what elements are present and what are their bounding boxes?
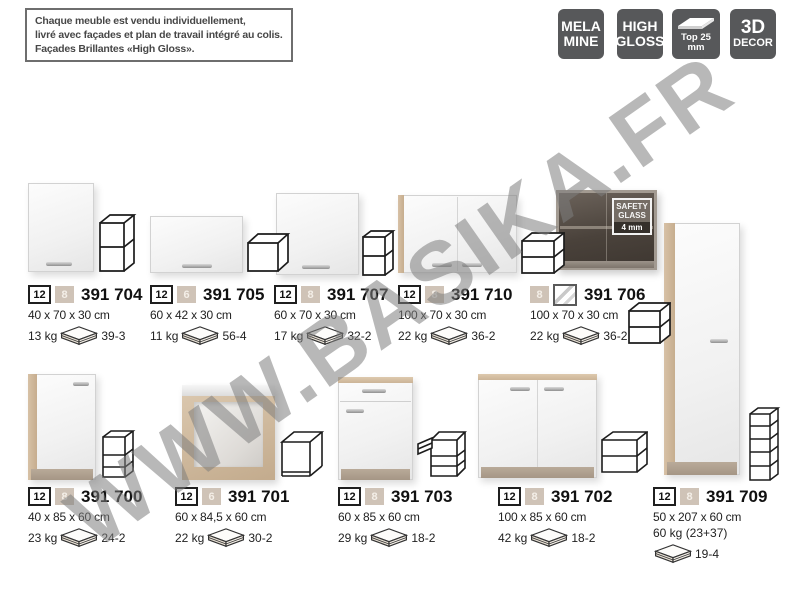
pack-ref: 36-2 [603, 329, 627, 343]
weight-row: 22 kg 36-2 [398, 325, 512, 347]
door-handle [346, 409, 364, 413]
parcel-icon [305, 325, 345, 347]
cabinet-side-panel [28, 374, 37, 480]
weight-row: 17 kg 32-2 [274, 325, 388, 347]
decor-line1: 3D [741, 19, 765, 37]
carcass-wireframe-icon [100, 429, 136, 479]
parcel-icon [561, 325, 601, 347]
product-weight: 42 kg [498, 531, 527, 545]
product-code: 391 709 [706, 487, 767, 507]
badge-row: 8 391 706 [530, 285, 645, 304]
worktop-edge [182, 385, 275, 396]
pack-ref: 56-4 [222, 329, 246, 343]
product-dimensions: 40 x 70 x 30 cm [28, 308, 142, 322]
parcel-icon [59, 527, 99, 549]
weight-row: 11 kg 56-4 [150, 325, 264, 347]
pack-badge: 8 [55, 488, 74, 505]
worktop-badge: Top 25 mm [672, 9, 720, 59]
glass-icon [553, 284, 577, 306]
product-dimensions: 100 x 70 x 30 cm [530, 308, 645, 322]
high-gloss-line1: HIGH [623, 19, 658, 34]
product-code: 391 701 [228, 487, 289, 507]
safety-glass-thickness: 4 mm [614, 222, 650, 233]
pack-badge: 8 [55, 286, 74, 303]
info-line-2: livré avec façades et plan de travail in… [35, 28, 283, 42]
pack-ref: 39-3 [101, 329, 125, 343]
product-weight: 60 kg (23+37) [653, 526, 767, 540]
badge-row: 12 8 391 704 [28, 285, 142, 304]
open-drawer-wireframe-icon [417, 428, 467, 478]
badge-row: 12 8 391 700 [28, 487, 142, 506]
catalog-page: Chaque meuble est vendu individuellement… [0, 0, 800, 600]
carcass-wireframe-icon [246, 231, 292, 273]
pack-ref: 32-2 [347, 329, 371, 343]
parcel-icon [369, 527, 409, 549]
product-photo-391706: SAFETY GLASS 4 mm [556, 190, 657, 270]
weight-row: 22 kg 30-2 [175, 527, 289, 549]
product-label-391710: 12 8 391 710 100 x 70 x 30 cm 22 kg 36-2 [398, 285, 512, 347]
product-label-391700: 12 8 391 700 40 x 85 x 60 cm 23 kg 24-2 [28, 487, 142, 549]
product-code: 391 700 [81, 487, 142, 507]
cabinet-front [664, 223, 740, 475]
product-dimensions: 60 x 85 x 60 cm [338, 510, 452, 524]
cabinet-plinth [667, 462, 737, 475]
pack-badge: 6 [177, 286, 196, 303]
product-code: 391 710 [451, 285, 512, 305]
qty-badge: 12 [338, 487, 361, 506]
cabinet-side-panel [664, 223, 675, 475]
cabinet-plinth [341, 469, 410, 480]
product-weight: 11 kg [150, 329, 178, 343]
product-weight: 22 kg [398, 329, 427, 343]
cabinet-handle [302, 265, 330, 269]
pack-badge: 8 [680, 488, 699, 505]
cabinet-side-panel [398, 195, 404, 273]
cabinet-handle [462, 263, 482, 267]
decor-badge: 3D DECOR [730, 9, 776, 59]
product-code: 391 706 [584, 285, 645, 305]
product-photo-391700 [28, 374, 96, 480]
pack-ref: 36-2 [471, 329, 495, 343]
cabinet-handle [73, 382, 89, 386]
product-label-391706: 8 391 706 100 x 70 x 30 cm 22 kg 36-2 [530, 285, 645, 347]
oven-opening [194, 402, 263, 467]
product-label-391709: 12 8 391 709 50 x 207 x 60 cm 60 kg (23+… [653, 487, 767, 565]
product-label-391702: 12 8 391 702 100 x 85 x 60 cm 42 kg 18-2 [498, 487, 612, 549]
high-gloss-badge: HIGH GLOSS [617, 9, 663, 59]
product-dimensions: 40 x 85 x 60 cm [28, 510, 142, 524]
cabinet-handle [432, 263, 452, 267]
cabinet-top-edge [338, 377, 413, 383]
badge-row: 12 8 391 703 [338, 487, 452, 506]
product-photo-391703 [338, 377, 413, 480]
cabinet-handle [182, 264, 212, 268]
melamine-line1: MELA [561, 19, 601, 34]
product-label-391704: 12 8 391 704 40 x 70 x 30 cm 13 kg 39-3 [28, 285, 142, 347]
door-divider [457, 197, 458, 271]
product-dimensions: 60 x 42 x 30 cm [150, 308, 264, 322]
parcel-icon [206, 527, 246, 549]
safety-glass-line1: SAFETY [614, 202, 650, 211]
weight-row: 13 kg 39-3 [28, 325, 142, 347]
product-label-391705: 12 6 391 705 60 x 42 x 30 cm 11 kg 56-4 [150, 285, 264, 347]
product-photo-391705 [150, 216, 243, 273]
pack-badge: 8 [365, 488, 384, 505]
melamine-line2: MINE [564, 34, 599, 49]
pack-badge: 6 [202, 488, 221, 505]
product-code: 391 707 [327, 285, 388, 305]
door-divider [537, 380, 538, 476]
glass-cabinet-bottom [559, 261, 654, 268]
badge-row: 12 6 391 705 [150, 285, 264, 304]
carcass-wireframe-icon [519, 229, 565, 275]
drawer-divider [340, 401, 411, 402]
cabinet-front [28, 183, 94, 272]
carcass-wireframe-icon [600, 429, 648, 474]
pack-badge: 8 [530, 286, 549, 303]
weight-row: 19-4 [653, 543, 767, 565]
high-gloss-line2: GLOSS [616, 34, 665, 49]
parcel-icon [653, 543, 693, 565]
pack-badge: 8 [301, 286, 320, 303]
product-dimensions: 100 x 70 x 30 cm [398, 308, 512, 322]
product-dimensions: 60 x 84,5 x 60 cm [175, 510, 289, 524]
product-photo-391709 [664, 223, 740, 475]
product-dimensions: 50 x 207 x 60 cm [653, 510, 767, 524]
qty-badge: 12 [28, 285, 51, 304]
cabinet-handle [710, 339, 728, 343]
product-weight: 29 kg [338, 531, 367, 545]
decor-line2: DECOR [733, 37, 773, 49]
product-photo-391704 [28, 183, 94, 272]
parcel-icon [429, 325, 469, 347]
carcass-wireframe-icon [360, 229, 396, 277]
info-line-3: Façades Brillantes «High Gloss». [35, 42, 283, 56]
product-dimensions: 60 x 70 x 30 cm [274, 308, 388, 322]
product-dimensions: 100 x 85 x 60 cm [498, 510, 612, 524]
glass-door-divider [606, 192, 607, 268]
product-code: 391 705 [203, 285, 264, 305]
info-box: Chaque meuble est vendu individuellement… [25, 8, 293, 62]
weight-row: 42 kg 18-2 [498, 527, 612, 549]
qty-badge: 12 [398, 285, 421, 304]
pack-ref: 18-2 [571, 531, 595, 545]
product-photo-391710 [398, 195, 517, 273]
qty-badge: 12 [274, 285, 297, 304]
product-label-391707: 12 8 391 707 60 x 70 x 30 cm 17 kg 32-2 [274, 285, 388, 347]
pack-ref: 30-2 [248, 531, 272, 545]
product-weight: 22 kg [175, 531, 204, 545]
pack-ref: 18-2 [411, 531, 435, 545]
weight-row: 22 kg 36-2 [530, 325, 645, 347]
qty-badge: 12 [175, 487, 198, 506]
parcel-icon [529, 527, 569, 549]
product-photo-391702 [478, 374, 597, 478]
product-weight: 22 kg [530, 329, 559, 343]
badge-row: 12 6 391 701 [175, 487, 289, 506]
badge-row: 12 8 391 710 [398, 285, 512, 304]
carcass-wireframe-icon [97, 213, 137, 273]
qty-badge: 12 [150, 285, 173, 304]
product-photo-391701 [182, 385, 275, 480]
safety-glass-line2: GLASS [614, 211, 650, 220]
pack-badge: 8 [525, 488, 544, 505]
cabinet-plinth [481, 467, 594, 478]
pack-ref: 24-2 [101, 531, 125, 545]
weight-row: 23 kg 24-2 [28, 527, 142, 549]
product-weight: 13 kg [28, 329, 57, 343]
safety-glass-label: SAFETY GLASS 4 mm [612, 198, 652, 235]
cabinet-handle [46, 262, 72, 266]
cabinet-plinth [31, 469, 93, 480]
drawer-handle [362, 389, 386, 393]
pack-ref: 19-4 [695, 547, 719, 561]
qty-badge: 12 [653, 487, 676, 506]
qty-badge: 12 [28, 487, 51, 506]
tall-carcass-wireframe-icon [747, 406, 781, 482]
product-label-391703: 12 8 391 703 60 x 85 x 60 cm 29 kg 18-2 [338, 487, 452, 549]
badge-row: 12 8 391 702 [498, 487, 612, 506]
badge-row: 12 8 391 707 [274, 285, 388, 304]
parcel-icon [180, 325, 220, 347]
weight-row: 29 kg 18-2 [338, 527, 452, 549]
qty-badge: 12 [498, 487, 521, 506]
product-code: 391 704 [81, 285, 142, 305]
worktop-caption: Top 25 mm [672, 33, 720, 53]
info-line-1: Chaque meuble est vendu individuellement… [35, 14, 283, 28]
worktop-slab-icon [676, 15, 716, 31]
cabinet-handle [544, 387, 564, 391]
product-weight: 17 kg [274, 329, 303, 343]
product-code: 391 702 [551, 487, 612, 507]
badge-row: 12 8 391 709 [653, 487, 767, 506]
product-code: 391 703 [391, 487, 452, 507]
open-frame-wireframe-icon [280, 428, 324, 478]
cabinet-front [28, 374, 96, 480]
melamine-badge: MELA MINE [558, 9, 604, 59]
product-label-391701: 12 6 391 701 60 x 84,5 x 60 cm 22 kg 30-… [175, 487, 289, 549]
product-weight: 23 kg [28, 531, 57, 545]
pack-badge: 8 [425, 286, 444, 303]
parcel-icon [59, 325, 99, 347]
cabinet-handle [510, 387, 530, 391]
